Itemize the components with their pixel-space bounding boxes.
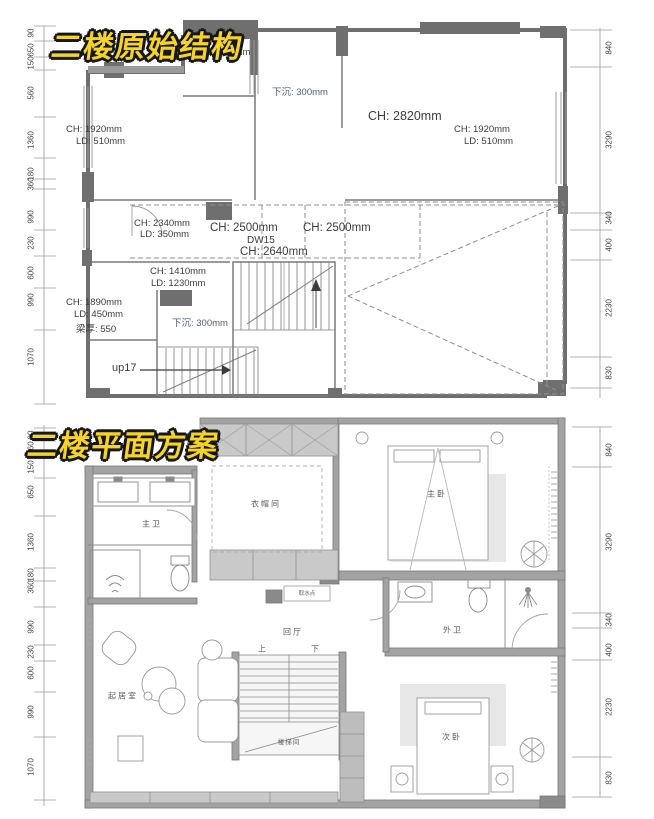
annotation-sunken-left: 下沉: 300mm xyxy=(172,315,228,329)
room-label-water-point: 取水点 xyxy=(299,589,316,597)
structural-columns xyxy=(82,20,568,398)
dim-label: 2230 xyxy=(605,299,614,317)
layout-plan-drawing xyxy=(0,414,654,819)
dim-label: 340 xyxy=(605,613,614,626)
dim-label: 990 xyxy=(27,705,36,718)
annotation-ch-1410: CH: 1410mm xyxy=(150,266,206,277)
master-bedroom-furniture xyxy=(356,432,557,570)
annotation-left-ch-1920: CH: 1920mm xyxy=(66,124,122,135)
dim-label: 1070 xyxy=(27,758,36,776)
annotation-left-ld-510: LD: 510mm xyxy=(76,136,125,147)
dim-label: 90 xyxy=(27,29,36,38)
dim-label: 830 xyxy=(605,366,614,379)
annotation-up17: up17 xyxy=(112,362,136,374)
title-original-structure: 二楼原始结构 xyxy=(49,22,247,66)
guest-bath-fixtures xyxy=(370,578,548,650)
annotation-right-ch-1920: CH: 1920mm xyxy=(454,124,510,135)
dim-label: 1360 xyxy=(27,533,36,551)
room-label-master-bedroom: 主卧 xyxy=(427,489,447,500)
dim-label: 230 xyxy=(27,645,36,658)
annotation-sunken-top: 下沉: 300mm xyxy=(272,84,328,98)
dim-label: 840 xyxy=(605,41,614,54)
annotation-ch-2500-b: CH: 2500mm xyxy=(303,222,371,234)
second-bedroom-furniture xyxy=(391,662,557,794)
dim-label: 400 xyxy=(605,643,614,656)
dim-label: 650 xyxy=(27,43,36,56)
dim-label: 360 xyxy=(27,580,36,593)
annotation-beam-550: 梁厚: 550 xyxy=(76,321,116,335)
annotation-ch-2500-a: CH: 2500mm xyxy=(210,222,278,234)
dim-label: 560 xyxy=(27,86,36,99)
dim-label: 340 xyxy=(605,211,614,224)
dim-label: 150 xyxy=(27,56,36,69)
dim-label: 990 xyxy=(27,210,36,223)
dimension-rail-left xyxy=(34,425,56,806)
annotation-ch-2820: CH: 2820mm xyxy=(368,109,442,123)
dim-label: 360 xyxy=(27,177,36,190)
main-stair xyxy=(233,262,335,330)
dim-label: 1070 xyxy=(27,348,36,366)
annotation-ch-1890: CH: 1890mm xyxy=(66,297,122,308)
room-label-stairwell: 楼梯间 xyxy=(278,736,301,746)
dim-label: 3290 xyxy=(605,533,614,551)
dim-label: 1360 xyxy=(27,131,36,149)
dim-label: 990 xyxy=(27,620,36,633)
dim-label: 650 xyxy=(27,485,36,498)
annotation-ld-350: LD: 350mm xyxy=(140,229,189,240)
title-layout-plan: 二楼平面方案 xyxy=(25,421,223,465)
master-bath-fixtures xyxy=(88,477,197,598)
annotation-ld-450: LD: 450mm xyxy=(74,309,123,320)
dim-label: 400 xyxy=(605,238,614,251)
dim-label: 2230 xyxy=(605,698,614,716)
room-label-cloakroom: 衣帽间 xyxy=(251,499,281,510)
annotation-dw15: DW15 xyxy=(247,235,275,246)
annotation-ch-2340: CH: 2340mm xyxy=(134,218,190,229)
dim-label: 830 xyxy=(605,771,614,784)
room-label-master-bath: 主卫 xyxy=(142,519,162,530)
dimension-rail-left xyxy=(34,26,56,404)
annotation-ch-2640: CH: 2640mm xyxy=(240,246,308,258)
dim-label: 990 xyxy=(27,293,36,306)
room-label-guest-bath: 外卫 xyxy=(443,625,463,636)
floor-plan-sheet: 二楼原始结构 二楼平面方案 90mm LD: 1020mm 下沉: 300mm … xyxy=(0,0,654,819)
dim-label: 840 xyxy=(605,443,614,456)
dimension-rail-right xyxy=(572,427,612,797)
room-label-hall: 回厅 xyxy=(283,627,303,638)
dim-label: 600 xyxy=(27,666,36,679)
room-label-second-bedroom: 次卧 xyxy=(442,732,462,743)
stair-up-label: 上 xyxy=(258,644,268,655)
dim-label: 3290 xyxy=(605,131,614,149)
annotation-ld-1230: LD: 1230mm xyxy=(151,278,205,289)
dim-label: 600 xyxy=(27,266,36,279)
annotation-right-ld-510: LD: 510mm xyxy=(464,136,513,147)
room-label-living-room: 起居室 xyxy=(108,691,138,702)
dim-label: 230 xyxy=(27,236,36,249)
stair-down-label: 下 xyxy=(311,644,321,655)
